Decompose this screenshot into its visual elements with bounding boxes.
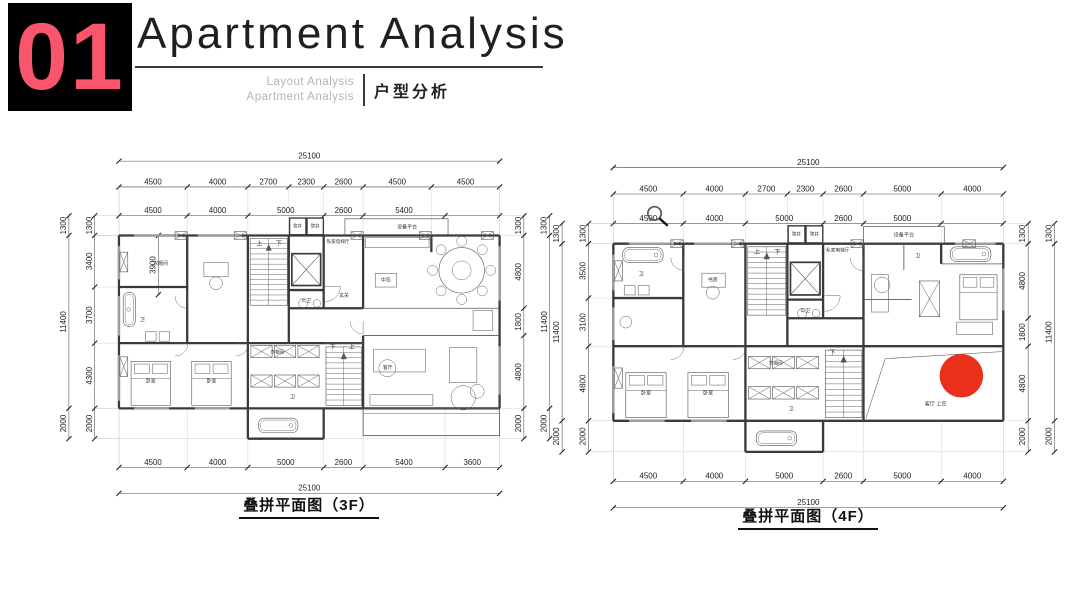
svg-text:下: 下 — [829, 350, 835, 357]
svg-text:25100: 25100 — [298, 484, 321, 493]
svg-text:11400: 11400 — [1045, 321, 1054, 343]
svg-text:管井: 管井 — [792, 231, 801, 238]
svg-text:卫: 卫 — [639, 272, 644, 278]
svg-text:中岛: 中岛 — [381, 277, 391, 284]
svg-text:4500: 4500 — [144, 177, 162, 186]
walls — [613, 226, 1003, 452]
svg-text:4000: 4000 — [963, 472, 981, 481]
svg-text:5400: 5400 — [395, 458, 413, 467]
svg-text:4500: 4500 — [144, 206, 162, 215]
svg-text:2000: 2000 — [579, 427, 588, 445]
svg-text:下: 下 — [774, 249, 780, 256]
svg-text:25100: 25100 — [797, 158, 820, 167]
subtitle-cn: 户型分析 — [374, 78, 450, 102]
svg-text:3100: 3100 — [579, 313, 588, 331]
svg-text:私家电梯厅: 私家电梯厅 — [826, 246, 850, 253]
svg-text:设备平台: 设备平台 — [894, 231, 914, 238]
svg-text:4000: 4000 — [209, 206, 227, 215]
plan-3f-caption: 叠拼平面图（3F） — [189, 494, 429, 519]
svg-text:1300: 1300 — [59, 216, 68, 234]
wall-piers-and-closets — [120, 232, 494, 387]
svg-text:2600: 2600 — [834, 472, 852, 481]
svg-text:3600: 3600 — [464, 458, 482, 467]
dimension-lines: 2510045004000270023002600500040004500400… — [552, 158, 1006, 455]
svg-text:11400: 11400 — [552, 321, 561, 343]
svg-text:上: 上 — [754, 248, 760, 256]
svg-text:管井: 管井 — [311, 223, 320, 230]
floor-plan-3f-drawing: 2510045004000270023002600450045004500400… — [52, 146, 562, 513]
svg-text:1300: 1300 — [1018, 224, 1027, 242]
svg-text:1300: 1300 — [579, 224, 588, 242]
title-underline — [135, 66, 543, 68]
svg-text:4800: 4800 — [579, 374, 588, 392]
subtitle-en-line1: Layout Analysis — [247, 75, 354, 90]
room-labels: 管井管井设备平台上下私家电梯厅卫书房公卫卫卧室卧室衣帽间卫下客厅 上空 — [639, 231, 947, 413]
svg-text:设备平台: 设备平台 — [397, 223, 417, 230]
svg-text:5000: 5000 — [277, 206, 295, 215]
svg-text:1800: 1800 — [514, 313, 523, 331]
svg-text:4000: 4000 — [963, 184, 981, 193]
svg-text:客厅: 客厅 — [383, 364, 393, 371]
svg-text:2000: 2000 — [1045, 427, 1054, 445]
svg-text:卫: 卫 — [140, 317, 145, 323]
svg-text:11400: 11400 — [59, 311, 68, 333]
svg-text:下: 下 — [276, 240, 282, 247]
svg-text:2600: 2600 — [335, 458, 353, 467]
svg-text:2000: 2000 — [514, 414, 523, 432]
svg-text:4500: 4500 — [639, 472, 657, 481]
svg-text:4000: 4000 — [705, 214, 723, 223]
svg-text:4500: 4500 — [388, 177, 406, 186]
floor-plan-4f: 2510045004000270023002600500040004500400… — [545, 152, 1067, 528]
svg-text:5000: 5000 — [893, 214, 911, 223]
section-index-box: 01 — [8, 3, 132, 111]
svg-text:5000: 5000 — [277, 458, 295, 467]
svg-text:管井: 管井 — [810, 231, 819, 238]
svg-text:4800: 4800 — [1018, 374, 1027, 392]
svg-text:2000: 2000 — [552, 427, 561, 445]
dimension-lines-right: 13004800180048002000 — [514, 213, 526, 441]
svg-text:4000: 4000 — [705, 472, 723, 481]
svg-text:5000: 5000 — [775, 472, 793, 481]
svg-text:4300: 4300 — [85, 366, 94, 384]
svg-text:管井: 管井 — [293, 223, 302, 230]
subtitle-block: Layout Analysis Apartment Analysis 户型分析 — [150, 74, 450, 106]
svg-text:衣帽间: 衣帽间 — [271, 348, 285, 355]
svg-text:1300: 1300 — [1045, 224, 1054, 242]
dimension-lines-right-outer: 1300114002000 — [1045, 221, 1058, 455]
subtitle-en-line2: Apartment Analysis — [247, 90, 354, 105]
svg-text:客厅 上空: 客厅 上空 — [925, 401, 947, 408]
svg-text:4800: 4800 — [514, 363, 523, 381]
elevator — [292, 254, 321, 286]
svg-text:5000: 5000 — [893, 472, 911, 481]
svg-text:2300: 2300 — [297, 177, 315, 186]
svg-text:公卫: 公卫 — [800, 308, 810, 314]
svg-text:4800: 4800 — [1018, 271, 1027, 289]
svg-text:2600: 2600 — [834, 184, 852, 193]
svg-text:4500: 4500 — [639, 184, 657, 193]
subtitle-divider — [363, 74, 365, 106]
svg-text:4500: 4500 — [457, 177, 475, 186]
svg-text:私家电梯厅: 私家电梯厅 — [327, 238, 350, 245]
red-marker-circle — [940, 354, 984, 398]
svg-text:2300: 2300 — [796, 184, 814, 193]
page-title: Apartment Analysis — [137, 9, 568, 59]
room-labels: 管井管井设备平台上下私家电梯厅衣帽间卫公卫玄关中岛客厅卧室卧室衣帽间卫下上 — [140, 223, 417, 401]
svg-text:1300: 1300 — [85, 216, 94, 234]
elevator — [790, 262, 820, 295]
walls — [119, 218, 500, 439]
svg-text:5000: 5000 — [775, 214, 793, 223]
svg-text:1800: 1800 — [1018, 323, 1027, 341]
svg-text:卫: 卫 — [789, 407, 794, 413]
svg-text:25100: 25100 — [298, 152, 321, 161]
plan-4f-caption: 叠拼平面图（4F） — [688, 505, 928, 530]
floor-plan-4f-drawing: 2510045004000270023002600500040004500400… — [545, 152, 1067, 528]
dimension-lines-right: 13004800180048002000 — [1018, 221, 1031, 455]
svg-text:5000: 5000 — [893, 184, 911, 193]
section-number: 01 — [15, 10, 125, 105]
grid-lines — [585, 192, 1031, 483]
svg-text:1300: 1300 — [514, 216, 523, 234]
svg-text:书房: 书房 — [708, 277, 718, 284]
svg-text:2600: 2600 — [335, 177, 353, 186]
svg-text:卫: 卫 — [290, 395, 295, 401]
svg-text:2600: 2600 — [335, 206, 353, 215]
svg-text:玄关: 玄关 — [339, 292, 349, 299]
svg-text:下: 下 — [330, 344, 336, 351]
svg-text:4800: 4800 — [514, 262, 523, 280]
svg-text:3400: 3400 — [85, 252, 94, 270]
stairs — [748, 247, 862, 418]
svg-text:3500: 3500 — [579, 261, 588, 279]
svg-text:2700: 2700 — [260, 177, 278, 186]
svg-text:3700: 3700 — [85, 306, 94, 324]
svg-text:5400: 5400 — [395, 206, 413, 215]
svg-text:4000: 4000 — [209, 458, 227, 467]
svg-text:4500: 4500 — [144, 458, 162, 467]
svg-text:卫: 卫 — [915, 254, 920, 260]
svg-text:2700: 2700 — [757, 184, 775, 193]
stairs — [250, 239, 361, 406]
svg-text:4000: 4000 — [705, 184, 723, 193]
grid-lines — [92, 185, 527, 469]
svg-text:2000: 2000 — [59, 414, 68, 432]
svg-text:2600: 2600 — [834, 214, 852, 223]
svg-text:衣帽间: 衣帽间 — [769, 360, 783, 367]
floor-plan-3f: 2510045004000270023002600450045004500400… — [52, 146, 562, 513]
svg-text:1300: 1300 — [552, 224, 561, 242]
svg-text:上: 上 — [349, 343, 355, 351]
svg-text:2000: 2000 — [1018, 427, 1027, 445]
svg-text:4000: 4000 — [209, 177, 227, 186]
svg-text:上: 上 — [256, 239, 262, 247]
svg-text:2000: 2000 — [85, 414, 94, 432]
